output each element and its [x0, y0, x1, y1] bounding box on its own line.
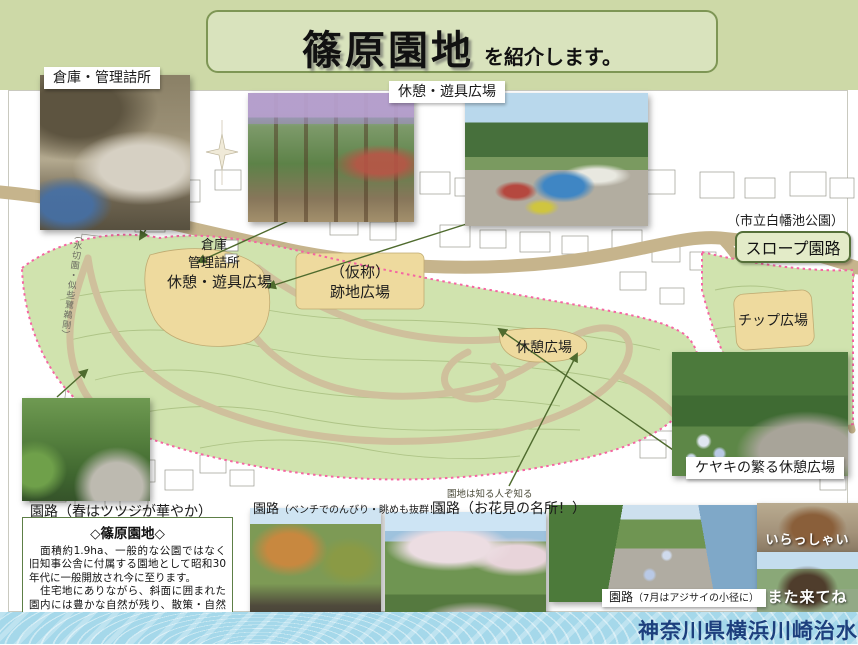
- maplabel-chip-plaza: チップ広場: [738, 310, 808, 330]
- caption-bench-sub: （ベンチでのんびり・眺めも抜群！）: [279, 505, 449, 516]
- maplabel-slope-path: スロープ園路: [735, 231, 851, 263]
- photo-storage-building: [40, 75, 190, 230]
- photo-ajisai-path: [549, 505, 763, 602]
- maplabel-storage: 倉庫 管理詰所: [181, 237, 247, 272]
- squirrel-goodbye-text: また来てね: [757, 586, 858, 607]
- title-banner: 篠原園地 を紹介します。: [206, 10, 718, 73]
- caption-hidden-gem: 園地は知る人ぞ知る: [447, 486, 533, 500]
- label-ajisai: 園路（7月はアジサイの小径に）: [602, 589, 766, 607]
- label-ajisai-sub: （7月はアジサイの小径に）: [633, 593, 759, 604]
- photo-wisteria-trellis: [248, 93, 414, 222]
- maplabel-storage-l2: 管理詰所: [181, 255, 247, 273]
- info-box-title: ◇篠原園地◇: [29, 522, 226, 542]
- maplabel-storage-l1: 倉庫: [181, 237, 247, 255]
- page-title: 篠原園地: [302, 18, 474, 76]
- page-title-suffix: を紹介します。: [484, 41, 622, 70]
- maplabel-kasho-l1: （仮称）: [320, 262, 400, 282]
- maplabel-kasho-l2: 跡地広場: [320, 282, 400, 302]
- maplabel-rest-plaza: 休憩広場: [516, 337, 572, 357]
- caption-bench-main: 園路: [253, 502, 279, 517]
- photo-spring-path: [22, 398, 150, 501]
- maplabel-shirahata-park: （市立白幡池公園）: [727, 210, 844, 229]
- photo-squirrel-welcome: いらっしゃい: [757, 503, 858, 552]
- caption-bench-path: 園路（ベンチでのんびり・眺めも抜群！）: [253, 498, 449, 517]
- maplabel-play-plaza: 休憩・遊具広場: [167, 271, 272, 292]
- info-box-para1: 面積約1.9ha、一般的な公園ではなく旧知事公舎に付属する園地として昭和30年代…: [29, 545, 226, 585]
- label-keyaki: ケヤキの繁る休憩広場: [686, 457, 844, 479]
- photo-playground-plaza: [465, 93, 648, 226]
- label-storage: 倉庫・管理詰所: [44, 67, 160, 89]
- photo-squirrel-goodbye: また来てね: [757, 552, 858, 612]
- squirrel-welcome-text: いらっしゃい: [757, 529, 858, 548]
- maplabel-kasho-plaza: （仮称） 跡地広場: [320, 262, 400, 303]
- footer-water-strip: 神奈川県横浜川崎治水事務所: [0, 612, 858, 644]
- caption-hanami: 園路（お花見の名所！）: [432, 498, 586, 518]
- label-ajisai-main: 園路: [609, 590, 633, 604]
- label-playground: 休憩・遊具広場: [389, 81, 505, 103]
- footer-agency: 神奈川県横浜川崎治水事務所: [638, 615, 858, 645]
